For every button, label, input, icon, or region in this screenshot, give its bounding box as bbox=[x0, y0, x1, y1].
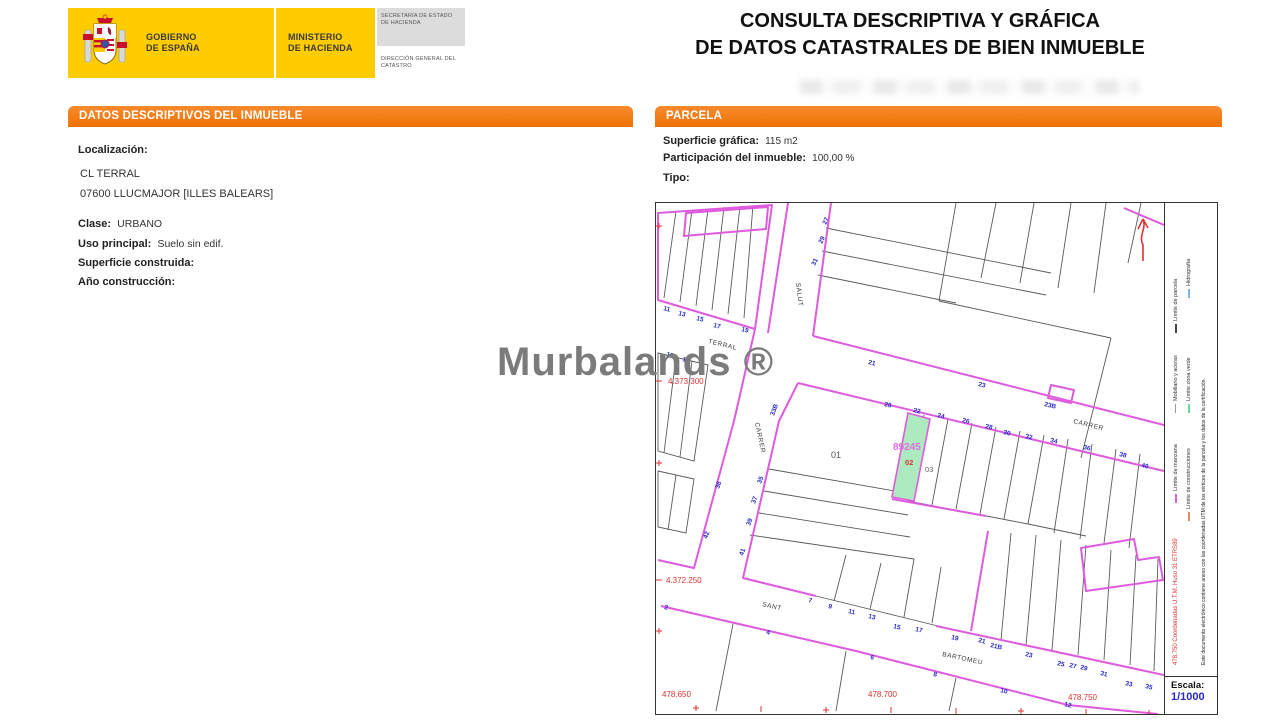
house-number: 17 bbox=[915, 626, 924, 635]
document-title: CONSULTA DESCRIPTIVA Y GRÁFICA DE DATOS … bbox=[660, 8, 1180, 62]
clase-row: Clase: URBANO bbox=[78, 218, 162, 230]
escala-box: Escala: 1/1000 bbox=[1165, 676, 1217, 714]
house-number: 12 bbox=[1064, 701, 1073, 710]
logo-yellow-band: GOBIERNODE ESPAÑA MINISTERIODE HACIENDA bbox=[68, 8, 375, 78]
parcel-label: 03 bbox=[925, 465, 933, 474]
address-line1: CL TERRAL bbox=[80, 168, 140, 180]
spain-coat-of-arms-icon bbox=[68, 8, 142, 78]
house-number: 23 bbox=[1025, 651, 1034, 660]
parcel-label: 01 bbox=[831, 450, 841, 460]
legend-mobiliario: Mobiliario y aceras bbox=[1173, 355, 1179, 413]
legend-zona-verde-line-sample bbox=[1188, 404, 1190, 413]
house-number: 21 bbox=[868, 359, 877, 368]
government-logo-block: GOBIERNODE ESPAÑA MINISTERIODE HACIENDA … bbox=[68, 8, 465, 78]
street-name: SANT bbox=[762, 601, 783, 612]
parcel-label: 02 bbox=[905, 458, 913, 467]
house-number: 17 bbox=[712, 322, 721, 331]
escala-label: Escala: bbox=[1171, 680, 1217, 691]
house-number: 27 bbox=[1069, 662, 1078, 671]
highlighted-parcel bbox=[892, 413, 930, 501]
house-number: 42 bbox=[702, 530, 711, 540]
participacion-row: Participación del inmueble: 100,00 % bbox=[663, 152, 854, 164]
secretaria-box: SECRETARÍA DE ESTADO DE HACIENDA bbox=[377, 8, 465, 46]
redacted-reference-blur bbox=[800, 80, 1140, 94]
legend-zona-verde: Límite zona verde bbox=[1186, 357, 1192, 413]
house-number: 15 bbox=[695, 315, 704, 324]
legend-manzana-line-sample bbox=[1175, 494, 1177, 503]
house-number: 25 bbox=[1057, 660, 1066, 669]
house-number: 36 bbox=[714, 480, 723, 490]
house-number: 31 bbox=[810, 257, 820, 267]
house-number: 11 bbox=[662, 305, 671, 314]
house-number: 41 bbox=[738, 547, 747, 557]
house-number: 39 bbox=[745, 517, 754, 527]
section-header-parcela: PARCELA bbox=[655, 106, 1222, 127]
house-number: 40 bbox=[1141, 462, 1150, 471]
document-title-line2: DE DATOS CATASTRALES DE BIEN INMUEBLE bbox=[660, 35, 1180, 62]
address-line2: 07600 LLUCMAJOR [ILLES BALEARS] bbox=[80, 188, 273, 200]
house-number: 24 bbox=[937, 412, 946, 421]
house-number: 20 bbox=[884, 401, 893, 410]
superficie-grafica-row: Superficie gráfica: 115 m2 bbox=[663, 135, 798, 147]
street-name: CARRER bbox=[753, 422, 766, 454]
cadastral-map-svg: 11131517191214272931212323B2022242628303… bbox=[656, 203, 1164, 714]
direccion-general-label: DIRECCIÓN GENERAL DEL CATASTRO bbox=[377, 54, 465, 72]
utm-coordinate-label: 478.700 bbox=[868, 690, 897, 699]
legend-limite-parcela: Límite de parcela bbox=[1173, 279, 1179, 333]
house-number: 4 bbox=[766, 629, 771, 637]
house-number: 23B bbox=[1044, 401, 1057, 411]
utm-coordinate-label: 478.750 bbox=[1068, 693, 1097, 702]
street-name: CARRER bbox=[1073, 418, 1105, 432]
cadastral-map: 11131517191214272931212323B2022242628303… bbox=[655, 202, 1218, 715]
legend-doc-note: Este documento electrónico contiene anex… bbox=[1201, 378, 1207, 665]
coat-of-arms-svg bbox=[82, 14, 128, 72]
utm-coordinate-label: 4.372.250 bbox=[666, 576, 702, 585]
document-title-line1: CONSULTA DESCRIPTIVA Y GRÁFICA bbox=[660, 8, 1180, 35]
house-number: 11 bbox=[848, 608, 857, 616]
house-number: 10 bbox=[1000, 687, 1009, 696]
house-number: 6 bbox=[870, 654, 875, 662]
legend-parcela-line-sample bbox=[1175, 324, 1177, 333]
street-name: BARTOMEU bbox=[942, 651, 984, 666]
localizacion-label: Localización: bbox=[78, 144, 148, 156]
house-number: 31 bbox=[1100, 670, 1109, 679]
section-header-datos-descriptivos: DATOS DESCRIPTIVOS DEL INMUEBLE bbox=[68, 106, 633, 127]
house-number: 19 bbox=[740, 326, 749, 335]
house-number: 9 bbox=[828, 603, 833, 611]
house-number: 33 bbox=[1125, 680, 1134, 689]
house-number: 21 bbox=[978, 637, 987, 646]
house-number: 37 bbox=[750, 495, 759, 505]
legend-hidrografia-line-sample bbox=[1188, 289, 1190, 298]
anio-construccion-row: Año construcción: bbox=[78, 276, 178, 288]
house-number: 33B bbox=[769, 403, 780, 417]
watermark: Murbalands ® bbox=[497, 340, 774, 385]
parcel-label: 89245 bbox=[893, 442, 921, 453]
legend-limite-manzana: Límite de manzana bbox=[1173, 444, 1179, 503]
house-number: 13 bbox=[868, 613, 877, 622]
house-number: 35 bbox=[1145, 683, 1154, 692]
house-number: 29 bbox=[1080, 664, 1089, 673]
ministerio-label: MINISTERIODE HACIENDA bbox=[276, 8, 353, 78]
gobierno-label: GOBIERNODE ESPAÑA bbox=[142, 8, 276, 78]
legend-hidrografia: Hidrografía bbox=[1186, 259, 1192, 298]
north-arrow-icon bbox=[1138, 219, 1148, 261]
house-number: 13 bbox=[677, 310, 686, 319]
house-number: 8 bbox=[933, 671, 938, 679]
uso-principal-row: Uso principal: Suelo sin edif. bbox=[78, 238, 223, 250]
street-name: SALUT bbox=[794, 282, 804, 307]
house-number: 19 bbox=[951, 634, 960, 643]
legend-mobiliario-line-sample bbox=[1175, 404, 1176, 413]
map-legend-column: Límite de parcela Mobiliario y aceras Hi… bbox=[1164, 203, 1217, 714]
legend-construcciones-line-sample bbox=[1188, 512, 1190, 521]
house-number: 30 bbox=[1003, 429, 1012, 438]
utm-coordinate-label: 478.650 bbox=[662, 690, 691, 699]
house-number: 38 bbox=[1119, 451, 1128, 460]
house-number: 21B bbox=[990, 642, 1003, 652]
cadastral-document-page: { "header": { "title_line1": "CONSULTA D… bbox=[0, 0, 1280, 720]
house-number: 15 bbox=[893, 623, 902, 632]
legend-limite-construcciones: Límite de construcciones bbox=[1186, 448, 1192, 521]
escala-value: 1/1000 bbox=[1171, 691, 1217, 703]
house-number: 23 bbox=[978, 381, 987, 390]
legend-utm-note: 478.750 Coordenadas U.T.M. Huso 31 ETRS8… bbox=[1173, 538, 1179, 665]
house-number: 7 bbox=[808, 597, 813, 605]
superficie-construida-row: Superficie construida: bbox=[78, 257, 197, 269]
tipo-row: Tipo: bbox=[663, 172, 693, 184]
house-number: 32 bbox=[1025, 433, 1034, 442]
